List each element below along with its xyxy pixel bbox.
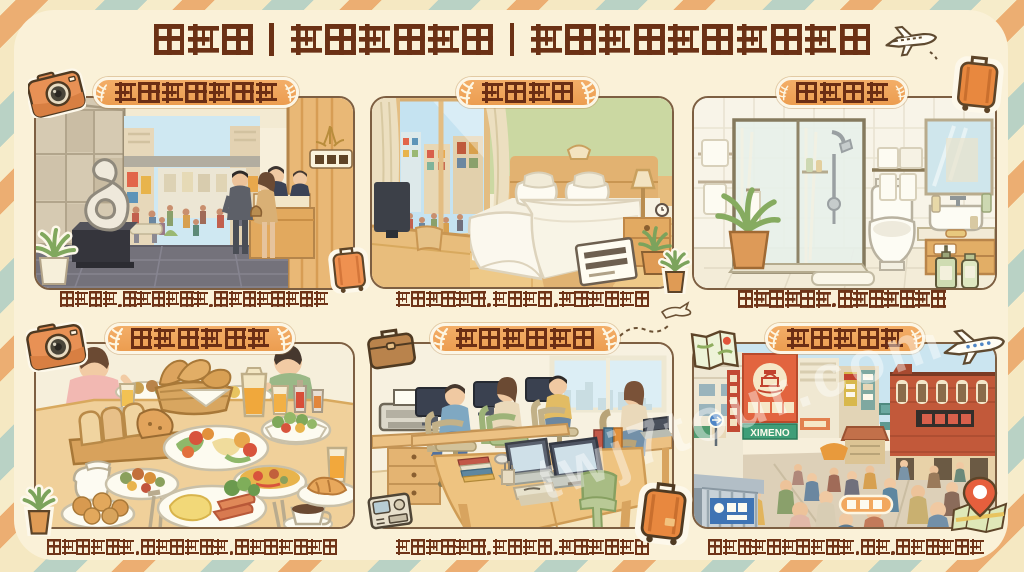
svg-text:XIMENO: XIMENO	[750, 428, 790, 439]
